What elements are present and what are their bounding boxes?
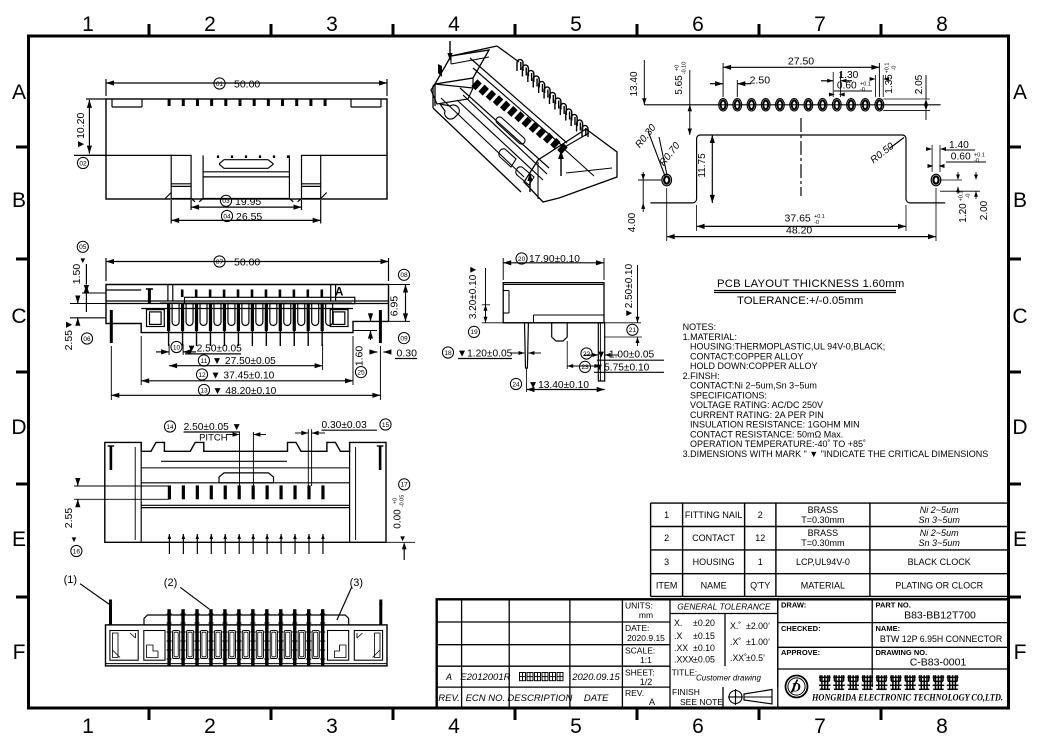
svg-text:0.00: 0.00 <box>393 509 404 529</box>
svg-text:07: 07 <box>216 259 224 266</box>
svg-text:MATERIAL: MATERIAL <box>801 581 845 591</box>
svg-text:1.35: 1.35 <box>884 74 895 94</box>
svg-text:DATE: DATE <box>584 693 609 704</box>
svg-text:50.00: 50.00 <box>234 79 260 91</box>
svg-text:PART NO.: PART NO. <box>876 601 911 610</box>
svg-text:4.00: 4.00 <box>627 212 638 232</box>
svg-text:REV.: REV. <box>625 688 644 698</box>
svg-text:C-B83-0001: C-B83-0001 <box>910 657 967 669</box>
svg-text:19.95: 19.95 <box>235 196 261 208</box>
svg-text:SCALE:: SCALE: <box>625 646 655 656</box>
svg-text:6: 6 <box>692 715 704 736</box>
svg-text:REV.: REV. <box>438 693 459 704</box>
svg-text:C: C <box>11 305 26 328</box>
svg-text:10: 10 <box>173 344 181 351</box>
svg-text:+0.1: +0.1 <box>959 191 965 202</box>
svg-text:5.65: 5.65 <box>674 75 685 95</box>
svg-text:18: 18 <box>444 350 452 357</box>
svg-text:11: 11 <box>200 358 207 365</box>
svg-text:NAME: NAME <box>701 581 727 591</box>
svg-text:B: B <box>12 189 26 212</box>
svg-text:4: 4 <box>448 13 460 36</box>
svg-text:▼ 37.45±0.10: ▼ 37.45±0.10 <box>211 371 275 382</box>
svg-text:17: 17 <box>401 482 409 489</box>
svg-text:HONGRIDA ELECTRONIC TECHNOLO: HONGRIDA ELECTRONIC TECHNOLOGY CO,LTD. <box>811 694 1003 704</box>
svg-text:1.60: 1.60 <box>354 346 366 367</box>
svg-text:1.40: 1.40 <box>949 140 969 151</box>
svg-text:8: 8 <box>936 715 948 736</box>
svg-text:6: 6 <box>692 13 704 36</box>
svg-text:6.95: 6.95 <box>389 296 401 317</box>
svg-text:HOLD DOWN:COPPER ALLOY: HOLD DOWN:COPPER ALLOY <box>690 361 818 371</box>
svg-text:T=0.30mm: T=0.30mm <box>801 515 844 525</box>
svg-text:1:1: 1:1 <box>640 655 652 665</box>
svg-text:1: 1 <box>664 510 669 520</box>
svg-text:E: E <box>12 528 26 551</box>
svg-text:HOUSING: HOUSING <box>693 557 735 567</box>
svg-text:02: 02 <box>79 160 87 167</box>
svg-text:CURRENT RATING: 2A PER PIN: CURRENT RATING: 2A PER PIN <box>690 410 824 420</box>
svg-text:▼: ▼ <box>79 256 87 265</box>
svg-text:▼2.50±0.05: ▼2.50±0.05 <box>187 344 243 355</box>
svg-text:CONTACT RESISTANCE: 50mΩ Ma: CONTACT RESISTANCE: 50mΩ Max. <box>690 429 843 439</box>
svg-text:NOTES:: NOTES: <box>683 322 717 332</box>
svg-text:FINISH: FINISH <box>672 687 700 697</box>
svg-text:DATE:: DATE: <box>625 623 649 633</box>
svg-text:23: 23 <box>581 364 589 371</box>
svg-text:2.55▼: 2.55▼ <box>63 320 75 351</box>
svg-text:A: A <box>445 672 452 682</box>
svg-text:Sn 3~5um: Sn 3~5um <box>919 515 961 525</box>
svg-text:TOLERANCE:+/-0.05mm: TOLERANCE:+/-0.05mm <box>737 295 863 307</box>
svg-text:13: 13 <box>200 387 208 394</box>
svg-text:2.55: 2.55 <box>63 508 75 529</box>
svg-text:2.50±0.05 ▼: 2.50±0.05 ▼ <box>184 422 242 433</box>
svg-text:.XX: .XX <box>674 643 688 653</box>
svg-text:ITEM: ITEM <box>656 581 678 591</box>
svg-text:27.50: 27.50 <box>788 56 814 68</box>
svg-text:VOLTAGE RATING: AC/DC 250V: VOLTAGE RATING: AC/DC 250V <box>690 400 823 410</box>
svg-text:SHEET:: SHEET: <box>625 668 655 678</box>
svg-text:1.MATERIAL:: 1.MATERIAL: <box>683 332 737 342</box>
svg-text:2.05: 2.05 <box>914 74 925 94</box>
svg-text:11.75: 11.75 <box>697 153 708 178</box>
svg-text:▼ 27.50±0.05: ▼ 27.50±0.05 <box>212 356 276 367</box>
svg-text:UNITS:: UNITS: <box>625 601 653 611</box>
svg-text:Ni 2~5um: Ni 2~5um <box>920 528 959 538</box>
svg-text:DESCRIPTION: DESCRIPTION <box>507 693 572 704</box>
svg-text:▼: ▼ <box>399 534 407 543</box>
svg-text:08: 08 <box>400 272 408 279</box>
svg-text:19: 19 <box>470 329 478 336</box>
svg-text:SPECIFICATIONS:: SPECIFICATIONS: <box>690 390 767 400</box>
svg-text:25: 25 <box>357 369 365 376</box>
svg-text:B: B <box>1013 189 1027 212</box>
svg-text:T=0.30mm: T=0.30mm <box>801 538 844 548</box>
svg-text:12: 12 <box>755 533 765 543</box>
svg-text:04: 04 <box>223 213 231 220</box>
svg-text:22: 22 <box>583 351 591 358</box>
svg-text:±0.20: ±0.20 <box>693 618 715 628</box>
svg-text:BRASS: BRASS <box>808 528 839 538</box>
svg-text:7: 7 <box>814 13 826 36</box>
svg-text:5: 5 <box>570 13 582 36</box>
svg-text:-0: -0 <box>814 220 819 226</box>
svg-text:▼2.50±0.10: ▼2.50±0.10 <box>624 263 635 318</box>
svg-text:▼ 48.20±0.10: ▼ 48.20±0.10 <box>213 386 277 397</box>
svg-text:2: 2 <box>204 715 216 736</box>
svg-text:▼10.20: ▼10.20 <box>75 113 87 150</box>
svg-text:2020.9.15: 2020.9.15 <box>627 633 665 643</box>
svg-text:26.55: 26.55 <box>236 211 262 223</box>
svg-text:E2012001R: E2012001R <box>460 672 510 683</box>
svg-text:50.00: 50.00 <box>234 257 260 269</box>
svg-text:X.˚: X.˚ <box>730 621 741 631</box>
svg-text:-0: -0 <box>860 87 865 93</box>
svg-text:2: 2 <box>664 533 669 543</box>
svg-text:2.50: 2.50 <box>750 75 771 87</box>
svg-text:1: 1 <box>82 715 94 736</box>
svg-text:24: 24 <box>512 381 520 388</box>
svg-text:NAME:: NAME: <box>876 624 901 633</box>
svg-text:▼1.20±0.05: ▼1.20±0.05 <box>457 349 513 360</box>
svg-text:21: 21 <box>629 327 637 334</box>
svg-text:0.60: 0.60 <box>837 81 857 92</box>
svg-text:2.FINSH:: 2.FINSH: <box>683 371 720 381</box>
svg-text:+0: +0 <box>675 65 681 71</box>
svg-text:±0.10: ±0.10 <box>693 643 715 653</box>
svg-text:06: 06 <box>83 336 91 343</box>
svg-text:PITCH: PITCH <box>199 433 228 444</box>
svg-text:F: F <box>1014 641 1027 664</box>
svg-text:-0: -0 <box>966 194 972 199</box>
svg-text:▼: ▼ <box>70 535 78 544</box>
svg-text:DRAW:: DRAW: <box>781 601 806 610</box>
svg-text:2020.09.15: 2020.09.15 <box>571 672 620 683</box>
svg-text:±0.05: ±0.05 <box>693 655 715 665</box>
svg-text:8: 8 <box>936 13 948 36</box>
svg-text:TITLE:: TITLE: <box>672 668 698 678</box>
svg-text:-0.05: -0.05 <box>400 495 406 508</box>
svg-text:LCP,UL94V-0: LCP,UL94V-0 <box>796 557 850 567</box>
svg-text:2: 2 <box>204 13 216 36</box>
svg-text:Customer drawing: Customer drawing <box>696 674 761 683</box>
svg-text:14: 14 <box>166 424 174 431</box>
svg-text:ECN NO.: ECN NO. <box>466 693 506 704</box>
svg-text:48.20: 48.20 <box>786 225 812 237</box>
svg-text:1.50: 1.50 <box>71 264 83 285</box>
svg-text:4: 4 <box>448 715 460 736</box>
svg-text:-0.10: -0.10 <box>682 62 688 75</box>
svg-text:Q'TY: Q'TY <box>750 581 770 591</box>
svg-text:1: 1 <box>758 557 763 567</box>
svg-text:.XX˚: .XX˚ <box>730 653 747 663</box>
svg-text:3: 3 <box>326 715 338 736</box>
svg-text:E: E <box>1013 528 1027 551</box>
svg-text:13.40: 13.40 <box>629 71 640 96</box>
svg-text:Sn 3~5um: Sn 3~5um <box>919 538 961 548</box>
svg-text:.X: .X <box>674 631 682 641</box>
svg-text:OPERATION TEMPERATURE:-40˚ T: OPERATION TEMPERATURE:-40˚ TO +85˚ <box>690 439 866 449</box>
svg-text:CONTACT: CONTACT <box>692 533 735 543</box>
svg-text:01: 01 <box>216 81 224 88</box>
svg-text:B83-BB12T700: B83-BB12T700 <box>904 610 976 622</box>
svg-text:.X˚: .X˚ <box>730 637 741 647</box>
svg-text:3: 3 <box>326 13 338 36</box>
svg-text:12: 12 <box>198 372 206 379</box>
svg-text:(1): (1) <box>64 574 77 586</box>
svg-text:A: A <box>12 81 26 104</box>
svg-text:5: 5 <box>570 715 582 736</box>
svg-text:F: F <box>13 641 26 664</box>
svg-text:A: A <box>1013 81 1027 104</box>
svg-text:±2.00’: ±2.00’ <box>746 621 770 631</box>
svg-text:+0.1: +0.1 <box>885 63 891 74</box>
svg-text:(3): (3) <box>350 577 363 589</box>
svg-text:PLATING OR CLOCR: PLATING OR CLOCR <box>895 581 983 591</box>
svg-text:09: 09 <box>400 335 408 342</box>
svg-text:16: 16 <box>73 548 81 555</box>
svg-text:1/2: 1/2 <box>640 677 653 687</box>
svg-text:CONTACT:Ni 2~5um,Sn 3~5um: CONTACT:Ni 2~5um,Sn 3~5um <box>690 381 817 391</box>
svg-text:2.00: 2.00 <box>979 200 990 220</box>
svg-text:CHECKED:: CHECKED: <box>781 624 821 633</box>
svg-text:+0: +0 <box>393 498 399 504</box>
svg-text:APPROVE:: APPROVE: <box>781 648 820 657</box>
svg-text:GENERAL TOLERANCE: GENERAL TOLERANCE <box>677 602 771 612</box>
svg-text:D: D <box>1012 416 1027 439</box>
svg-text:7: 7 <box>814 715 826 736</box>
svg-text:CONTACT:COPPER ALLOY: CONTACT:COPPER ALLOY <box>690 351 803 361</box>
svg-text:3.20±0.10▼: 3.20±0.10▼ <box>468 265 479 319</box>
svg-text:3.DIMENSIONS WITH MARK " ▼: 3.DIMENSIONS WITH MARK " ▼ "INDICATE THE… <box>683 449 989 459</box>
svg-text:.XXX: .XXX <box>674 655 694 665</box>
svg-text:37.65: 37.65 <box>785 213 811 225</box>
svg-text:Ni 2~5um: Ni 2~5um <box>920 505 959 515</box>
svg-text:FITTING NAIL: FITTING NAIL <box>685 510 743 520</box>
svg-text:03: 03 <box>222 198 230 205</box>
svg-text:2: 2 <box>758 510 763 520</box>
svg-text:15: 15 <box>382 422 390 429</box>
svg-text:±0.5’: ±0.5’ <box>746 653 765 663</box>
svg-text:PCB LAYOUT THICKNESS 1.60mm: PCB LAYOUT THICKNESS 1.60mm <box>717 278 904 290</box>
svg-text:C: C <box>1012 305 1027 328</box>
svg-text:HOUSING:THERMOPLASTIC,UL 94V-: HOUSING:THERMOPLASTIC,UL 94V-0,BLACK; <box>690 342 885 352</box>
svg-text:0.60: 0.60 <box>951 152 971 163</box>
svg-text:17.90±0.10: 17.90±0.10 <box>529 254 580 265</box>
svg-text:1: 1 <box>82 13 94 36</box>
svg-text:BTW 12P 6.95H CONNECTOR: BTW 12P 6.95H CONNECTOR <box>880 634 1002 644</box>
svg-text:1.20: 1.20 <box>958 203 969 223</box>
svg-text:20: 20 <box>518 256 526 263</box>
svg-text:A: A <box>335 287 343 299</box>
svg-text:±0.15: ±0.15 <box>693 631 715 641</box>
svg-text:mm: mm <box>639 610 653 620</box>
svg-text:(2): (2) <box>164 577 177 589</box>
svg-text:-0: -0 <box>974 158 979 164</box>
svg-text:INSULATION RESISTANCE: 1GOHM: INSULATION RESISTANCE: 1GOHM MIN <box>690 420 860 430</box>
svg-text:0.30: 0.30 <box>397 348 418 360</box>
svg-text:SEE NOTE: SEE NOTE <box>680 697 723 707</box>
svg-text:A: A <box>649 697 655 707</box>
svg-text:X.: X. <box>674 618 682 628</box>
svg-text:3: 3 <box>664 557 669 567</box>
svg-text:05: 05 <box>79 244 87 251</box>
svg-text:-0: -0 <box>892 66 898 71</box>
svg-text:0.30±0.03: 0.30±0.03 <box>322 420 368 431</box>
svg-text:D: D <box>11 416 26 439</box>
svg-text:BLACK CLOCK: BLACK CLOCK <box>908 557 971 567</box>
svg-text:BRASS: BRASS <box>808 505 839 515</box>
svg-text:±1.00’: ±1.00’ <box>746 637 770 647</box>
